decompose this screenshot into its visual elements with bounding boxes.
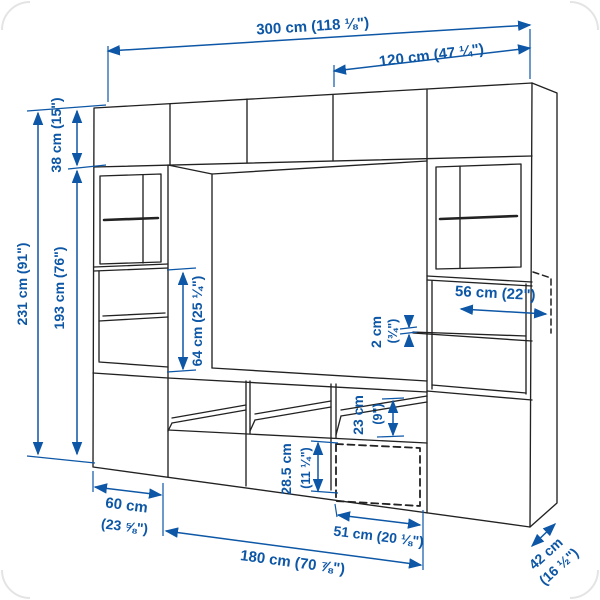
- left-open-shelves: [93, 165, 168, 477]
- dim-shelf-thickness-in: (¾"): [386, 319, 400, 344]
- arrow-shelf-depth: [461, 309, 546, 314]
- dim-total-width: 300 cm (118 ⅛"): [256, 14, 370, 38]
- furniture-line-art: [93, 83, 557, 527]
- dim-top-row-height: 38 cm (15"): [48, 97, 64, 172]
- dim-side-cabinet-width-in: (23 ⅝"): [100, 515, 149, 537]
- dim-media-compartment-height-cm: 23 cm: [350, 395, 366, 435]
- product-dimension-diagram: 300 cm (118 ⅛") 120 cm (47 ¼") 231 cm (9…: [0, 0, 600, 600]
- arrow-drawer-width: [338, 515, 420, 525]
- hidden-depth-edge: [533, 272, 551, 333]
- dim-upper-right-width: 120 cm (47 ¼"): [378, 41, 485, 71]
- cabinet-outline: [93, 83, 557, 527]
- dim-shelf-thickness-cm: 2 cm: [368, 316, 384, 348]
- glass-door-left: [94, 174, 168, 271]
- dim-media-compartment-height-in: (9"): [371, 403, 385, 424]
- dim-total-height: 231 cm (91"): [14, 243, 30, 326]
- dim-frame-height: 193 cm (76"): [51, 247, 67, 330]
- dim-side-cabinet-width-cm: 60 cm: [104, 495, 148, 517]
- dim-shelf-depth: 56 cm (22"): [455, 283, 536, 304]
- arrow-side-cabinet-width: [95, 487, 161, 495]
- tv-niche: [168, 161, 427, 392]
- drawer-dashed-outline: [336, 444, 420, 506]
- dim-drawer-front-height-in: (11 ¼"): [299, 447, 313, 488]
- right-column: [413, 164, 532, 400]
- top-cabinet-row: [94, 89, 532, 513]
- dimension-drawing-canvas: 300 cm (118 ⅛") 120 cm (47 ¼") 231 cm (9…: [0, 0, 600, 600]
- dim-tv-bench-width: 180 cm (70 ⅞"): [239, 547, 346, 578]
- dim-drawer-width: 51 cm (20 ⅛"): [333, 523, 425, 550]
- dim-drawer-front-height-cm: 28.5 cm: [278, 443, 294, 494]
- dim-open-compartment-height: 64 cm (25 ¼"): [189, 276, 205, 367]
- tv-bench: [168, 381, 427, 490]
